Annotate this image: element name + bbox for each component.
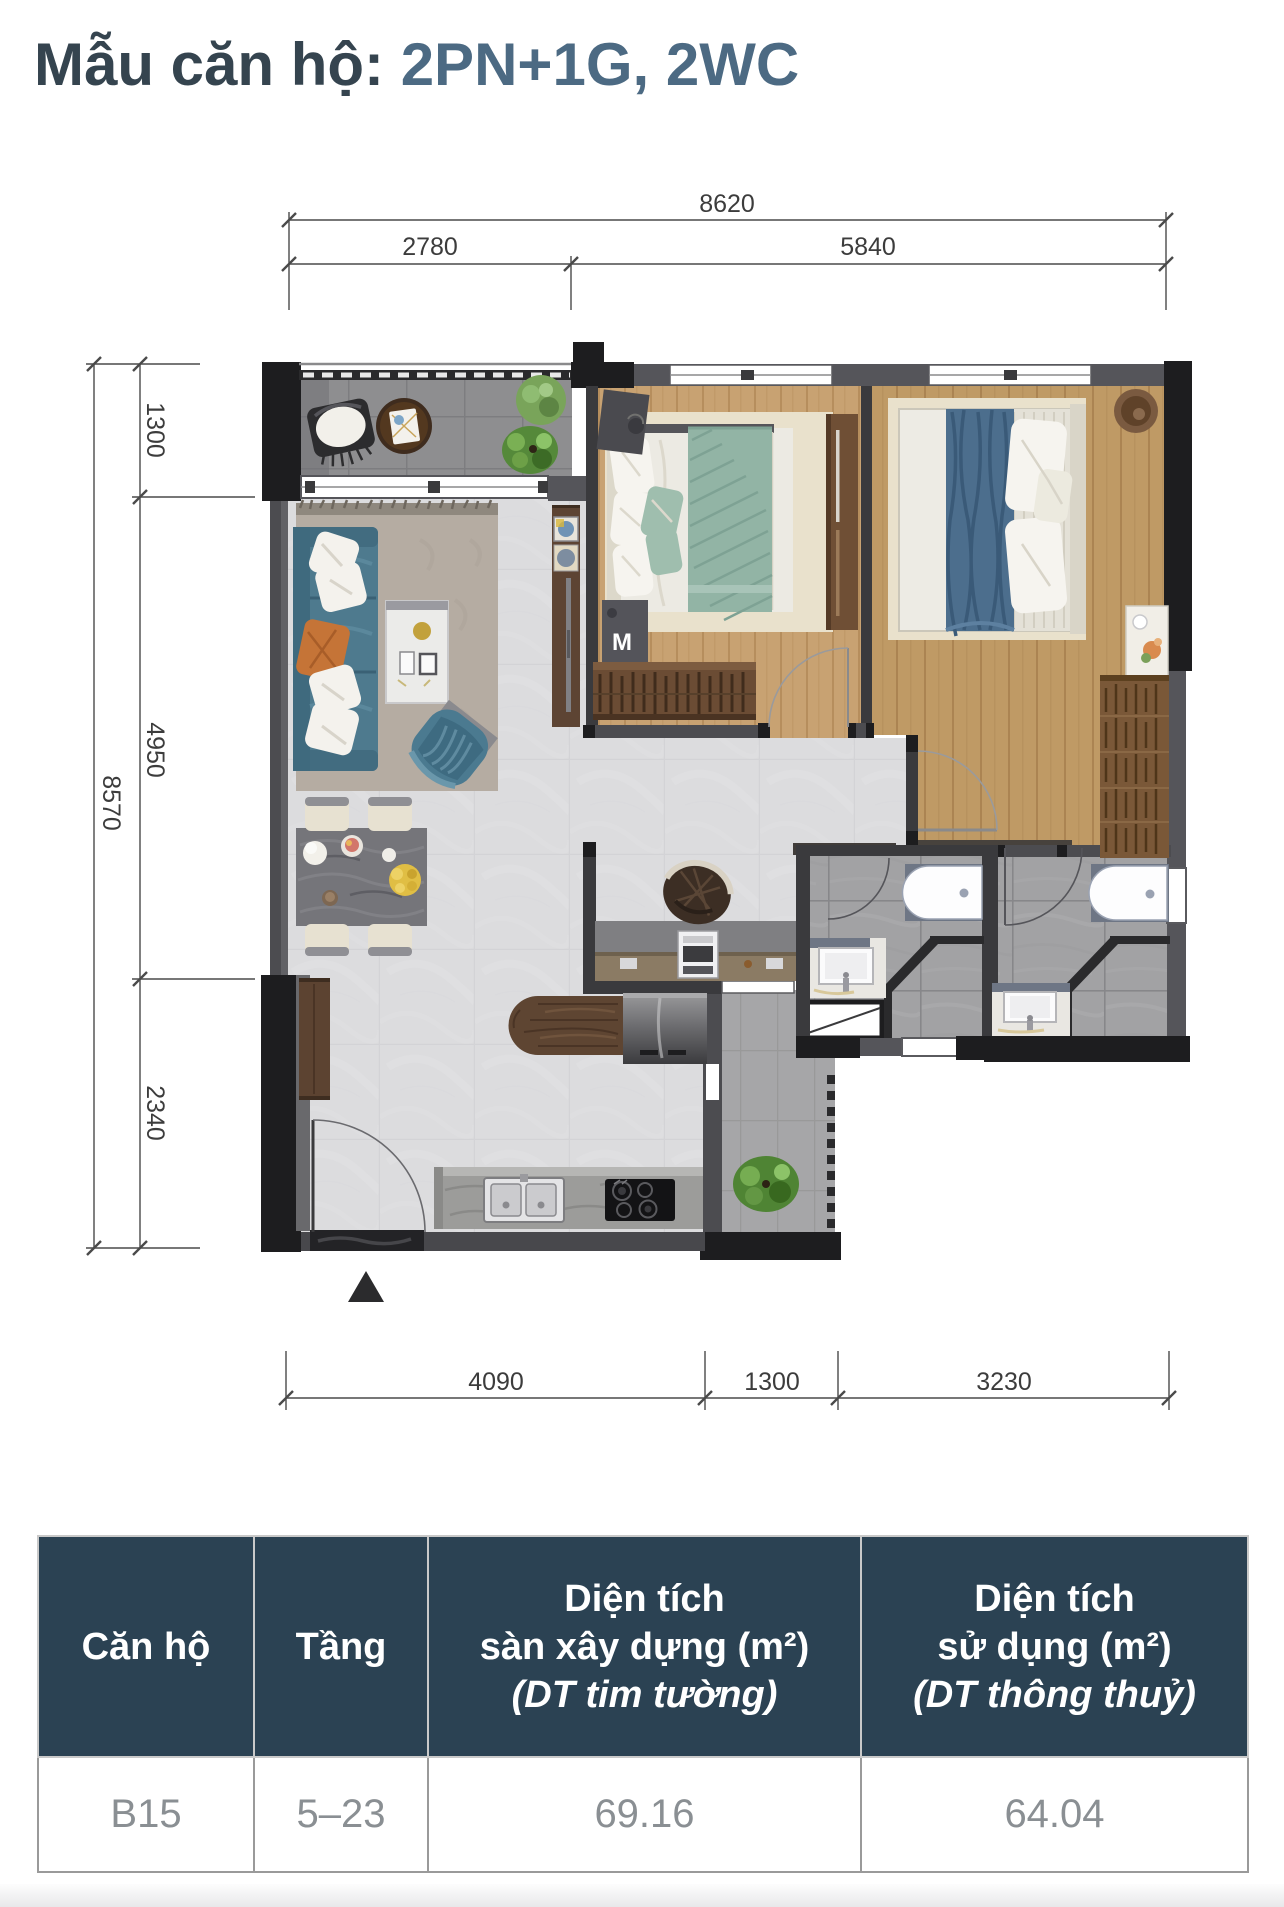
svg-text:2780: 2780 bbox=[402, 233, 458, 261]
svg-text:3230: 3230 bbox=[976, 1368, 1032, 1396]
svg-text:2340: 2340 bbox=[141, 1085, 169, 1141]
svg-text:4090: 4090 bbox=[468, 1368, 524, 1396]
svg-text:5840: 5840 bbox=[840, 233, 896, 261]
svg-text:1300: 1300 bbox=[141, 402, 169, 458]
svg-text:8620: 8620 bbox=[699, 190, 755, 218]
svg-text:1300: 1300 bbox=[744, 1368, 800, 1396]
svg-text:4950: 4950 bbox=[141, 722, 169, 778]
svg-text:8570: 8570 bbox=[97, 775, 125, 831]
svg-text:M: M bbox=[612, 629, 632, 656]
